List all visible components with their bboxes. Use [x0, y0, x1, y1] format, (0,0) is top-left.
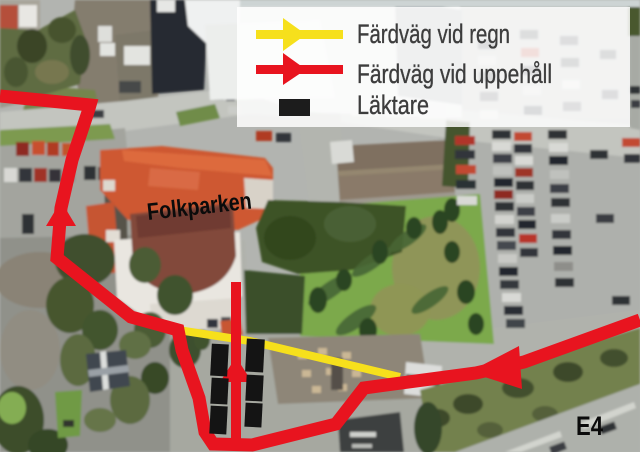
svg-text:Läktare: Läktare	[357, 90, 429, 120]
svg-text:Färdväg vid regn: Färdväg vid regn	[357, 19, 510, 49]
svg-text:Färdväg vid uppehåll: Färdväg vid uppehåll	[357, 59, 552, 89]
svg-text:E4: E4	[576, 411, 603, 441]
